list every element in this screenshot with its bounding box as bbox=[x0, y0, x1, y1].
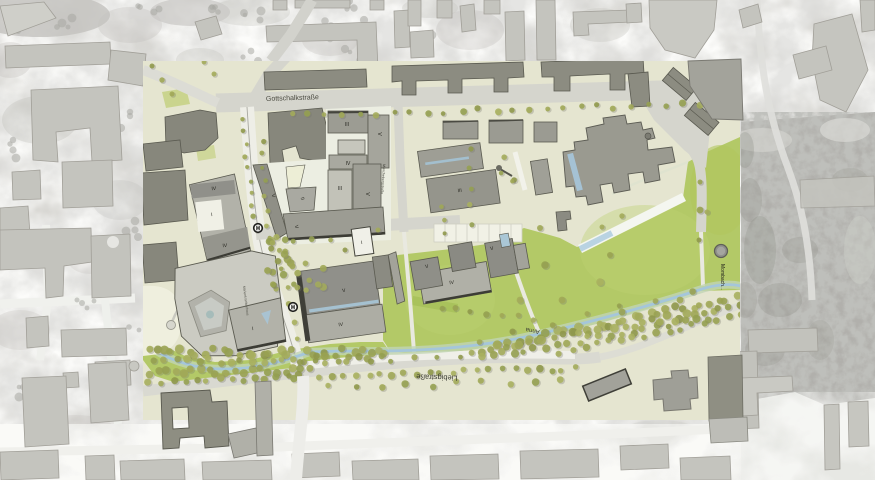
svg-text:Mombach...: Mombach... bbox=[719, 264, 725, 290]
svg-text:III: III bbox=[457, 188, 462, 195]
svg-text:III: III bbox=[338, 186, 342, 192]
svg-text:Liebigstraße: Liebigstraße bbox=[416, 372, 458, 382]
svg-text:III: III bbox=[345, 122, 349, 128]
svg-text:IV: IV bbox=[346, 161, 351, 167]
